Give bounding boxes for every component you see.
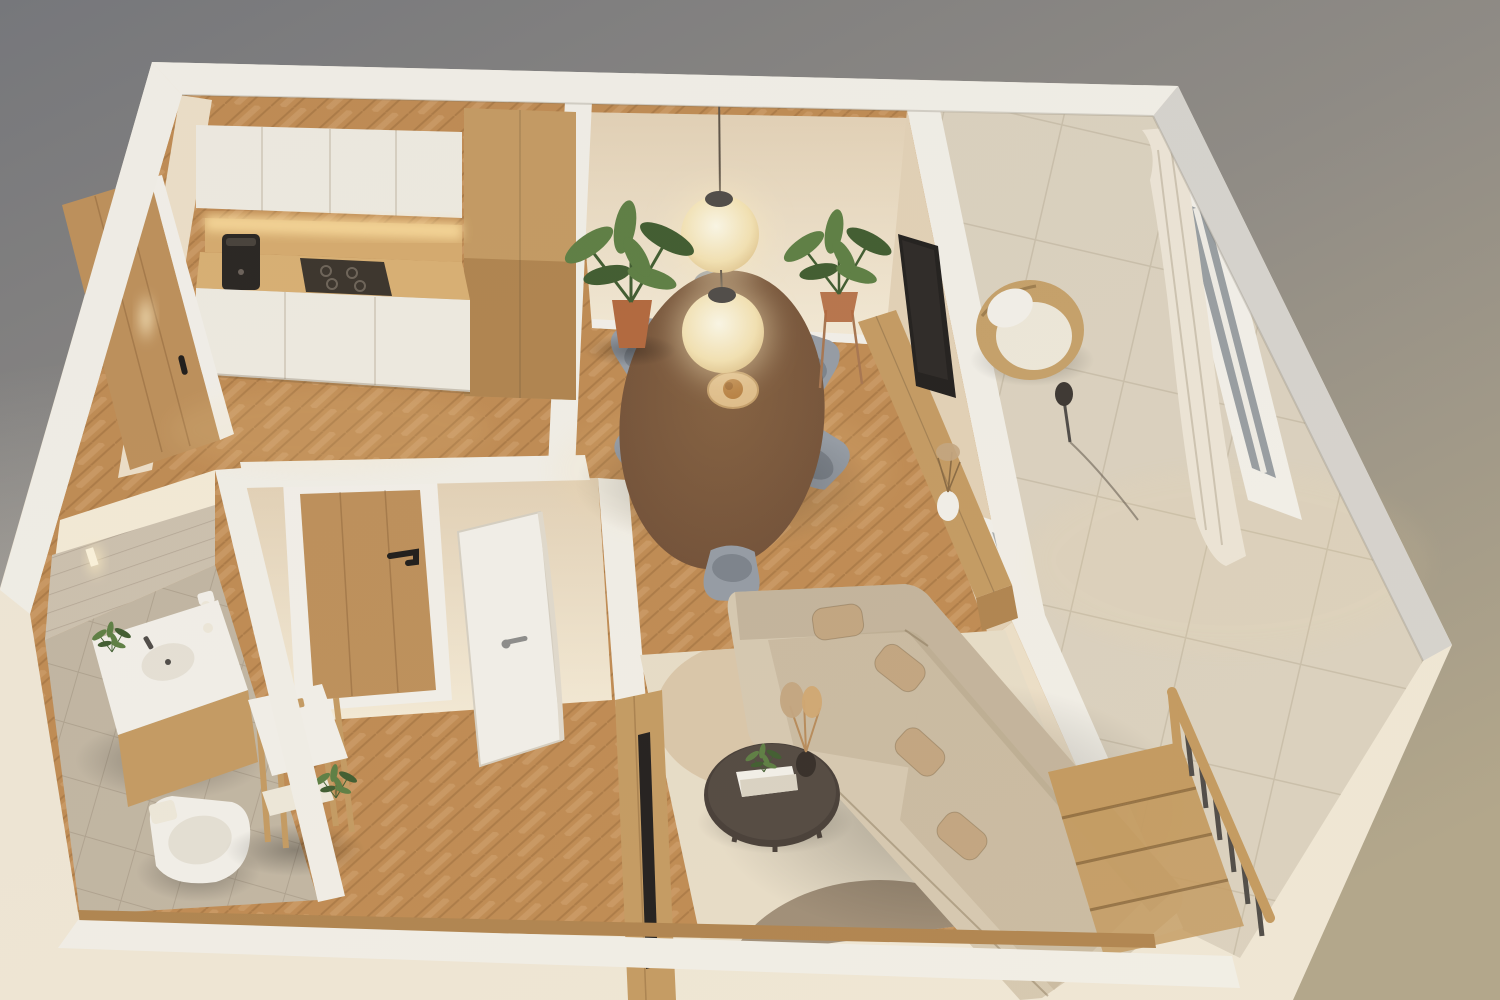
floorplan-render: 3D cutaway floor-plan render of an apart… bbox=[0, 0, 1500, 1000]
vignette bbox=[0, 0, 1500, 1000]
render-canvas: 3D cutaway floor-plan render of an apart… bbox=[0, 0, 1500, 1000]
